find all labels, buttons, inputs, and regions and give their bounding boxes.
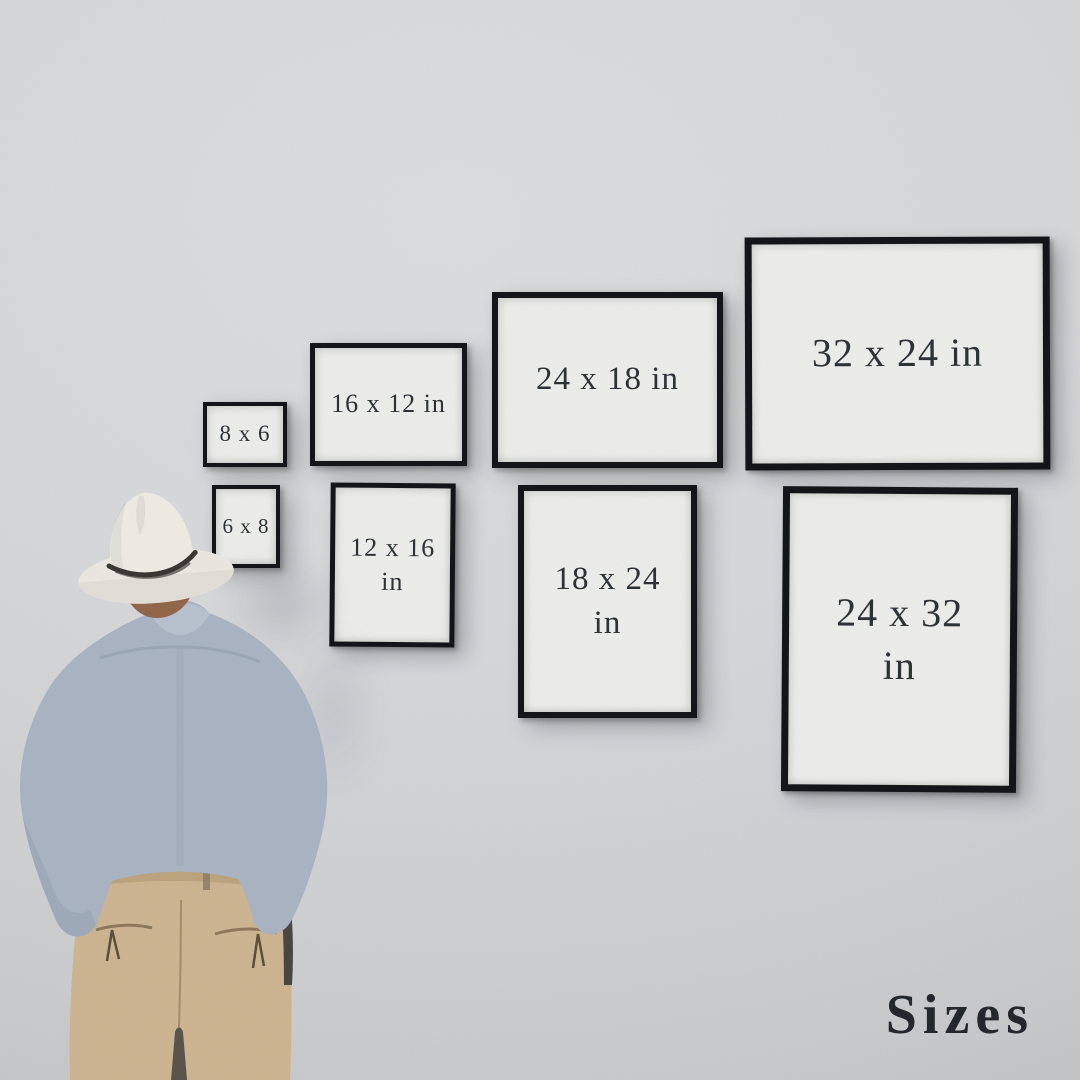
size-label: 18 x 24 in: [555, 558, 661, 645]
size-label-line: 24 x 18 in: [536, 358, 679, 402]
frame-face: 8 x 6: [207, 406, 283, 463]
size-label-line: 16 x 12 in: [331, 387, 446, 421]
size-label-line: 8 x 6: [220, 419, 271, 449]
size-label-line: in: [350, 565, 435, 600]
size-label-line: in: [836, 639, 963, 693]
frame-face: 16 x 12 in: [315, 348, 462, 461]
size-label: 24 x 18 in: [536, 358, 679, 402]
frame-face: 32 x 24 in: [752, 243, 1044, 463]
size-label: 8 x 6: [220, 419, 271, 449]
size-label-line: 32 x 24 in: [812, 327, 983, 380]
fedora-hat: [71, 486, 236, 610]
frame-16x12: 16 x 12 in: [310, 343, 467, 466]
frame-24x32: 24 x 32 in: [781, 486, 1018, 793]
size-label-line: 18 x 24: [555, 558, 661, 602]
size-label: 24 x 32 in: [836, 586, 964, 692]
frame-face: 24 x 32 in: [788, 493, 1011, 786]
frame-face: 24 x 18 in: [498, 298, 717, 462]
size-label-line: 24 x 32: [836, 586, 963, 640]
sizes-title: Sizes: [886, 983, 1034, 1047]
size-label-line: in: [555, 602, 661, 646]
frame-face: 18 x 24 in: [524, 491, 691, 712]
frame-32x24: 32 x 24 in: [745, 236, 1051, 470]
man-figure: [0, 480, 360, 1080]
frame-8x6: 8 x 6: [203, 402, 287, 467]
size-label: 32 x 24 in: [812, 327, 983, 380]
frame-24x18: 24 x 18 in: [492, 292, 723, 468]
size-label-line: 12 x 16: [350, 530, 435, 565]
frame-18x24: 18 x 24 in: [518, 485, 697, 718]
size-guide-scene: 8 x 6 16 x 12 in 24 x 18 in 32 x 24 in 6…: [0, 0, 1080, 1080]
size-label: 12 x 16 in: [350, 530, 436, 599]
size-label: 16 x 12 in: [331, 387, 446, 421]
